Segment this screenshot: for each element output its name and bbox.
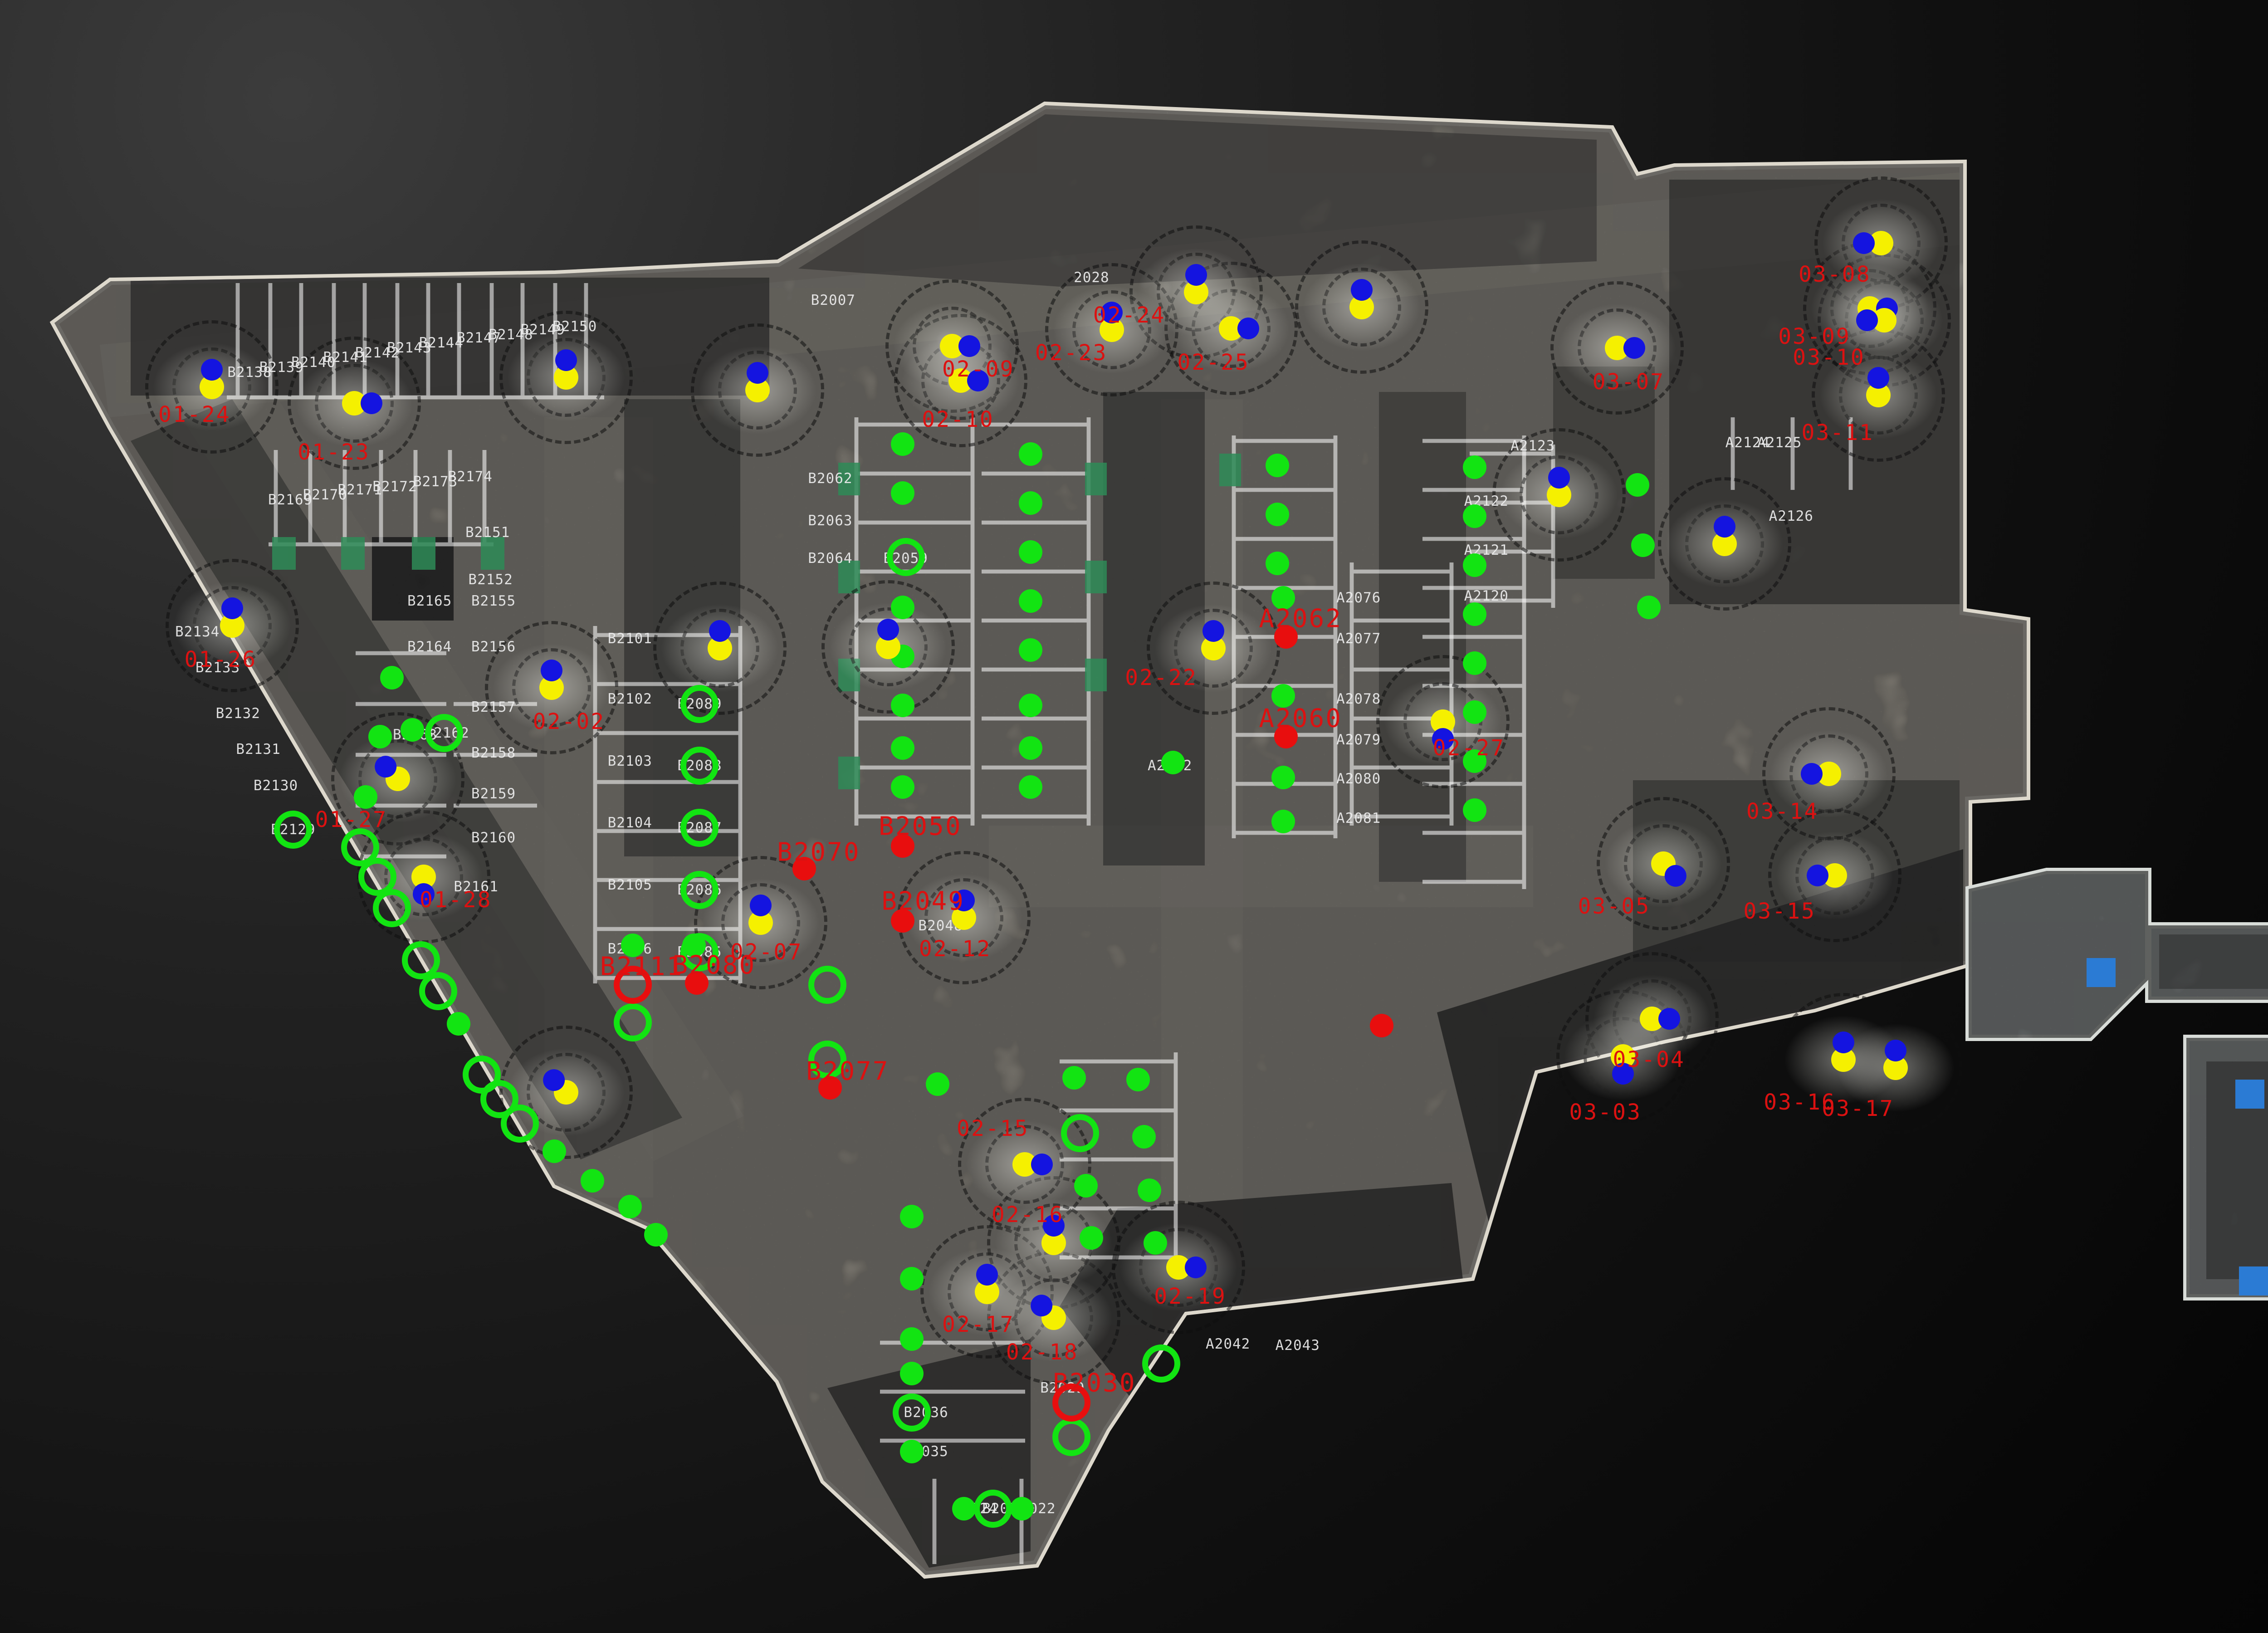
parking-status-dot-ok[interactable] [926, 1072, 949, 1096]
space-id-label: A2123 [1510, 438, 1555, 454]
scan-station-orientation [1430, 709, 1456, 734]
parking-status-dot-ok[interactable] [1266, 454, 1289, 477]
scanner-head-icon [1856, 309, 1878, 331]
parking-status-dot-ok[interactable] [1631, 533, 1655, 557]
scan-station-marker[interactable] [1546, 482, 1572, 508]
parking-status-dot-ok[interactable] [1271, 810, 1295, 833]
space-id-label: A2077 [1336, 631, 1381, 647]
scan-station-label: 02-15 [957, 1116, 1029, 1141]
parking-status-ring-ok[interactable] [274, 811, 312, 849]
scan-station-marker[interactable] [748, 910, 773, 935]
scan-station-orientation [1822, 863, 1848, 888]
parking-status-dot-ok[interactable] [368, 725, 392, 748]
parking-status-dot-ok[interactable] [447, 1012, 470, 1036]
scan-station-orientation [1201, 636, 1226, 661]
space-id-label: B2105 [608, 877, 652, 893]
scan-station-label: 01-28 [420, 887, 492, 913]
scan-station-orientation [1183, 279, 1209, 305]
parking-status-ring-ok[interactable] [680, 809, 719, 847]
space-id-label: A2076 [1336, 590, 1381, 606]
scan-station-label: 02-27 [1433, 735, 1505, 761]
scan-station-label: 01-27 [315, 807, 388, 832]
scan-station-orientation [745, 377, 770, 403]
scan-station-marker[interactable] [1201, 636, 1226, 661]
scan-station-marker[interactable] [342, 391, 367, 416]
parking-status-dot-ok[interactable] [900, 1327, 924, 1351]
scan-station-marker[interactable] [1872, 308, 1897, 333]
parking-status-dot-ok[interactable] [380, 666, 404, 689]
scan-station-label: 01-24 [158, 402, 231, 427]
scan-station-label: 03-11 [1801, 420, 1874, 445]
parking-status-dot-ok[interactable] [1019, 589, 1042, 613]
parking-status-dot-ok[interactable] [1463, 455, 1486, 479]
space-id-label: B2164 [407, 639, 452, 655]
scan-station-marker[interactable] [875, 634, 901, 660]
scan-station-label: 02-23 [1035, 340, 1108, 366]
scan-station-label: 02-16 [992, 1202, 1064, 1227]
scanner-head-icon [1867, 367, 1889, 389]
parking-status-dot-ok[interactable] [1019, 491, 1042, 515]
scan-station-marker[interactable] [939, 333, 965, 359]
parking-status-ring-ok[interactable] [680, 685, 719, 723]
space-id-label: B2132 [216, 705, 260, 722]
scanner-head-icon [1833, 1032, 1854, 1053]
scan-station-orientation [553, 365, 579, 390]
scan-station-label: 02-22 [1125, 665, 1198, 690]
parking-status-dot-ok[interactable] [891, 736, 914, 760]
scan-station-orientation [1218, 316, 1244, 341]
scan-station-label: 02-02 [533, 709, 606, 734]
scanner-head-icon [747, 362, 768, 384]
right-wing-corridors [1960, 853, 2268, 1615]
space-id-label: B2104 [608, 815, 652, 831]
parking-status-dot-ok[interactable] [1463, 553, 1486, 577]
parking-status-dot-ok[interactable] [1019, 442, 1042, 466]
parking-status-ring-ok[interactable] [887, 538, 925, 576]
space-id-label: B2165 [407, 593, 452, 609]
space-id-label: B2150 [552, 318, 597, 335]
parking-status-ring-ok[interactable] [1052, 1418, 1090, 1456]
parking-status-dot-ok[interactable] [1019, 540, 1042, 564]
scan-station-marker[interactable] [1218, 316, 1244, 341]
scan-station-label: 03-03 [1569, 1100, 1642, 1125]
scan-station-label: 01-23 [298, 440, 370, 465]
space-id-label: A2079 [1336, 732, 1381, 748]
parking-status-dot-ok[interactable] [1126, 1068, 1150, 1091]
scanner-head-icon [1185, 264, 1207, 286]
parking-status-ring-ok[interactable] [1142, 1345, 1180, 1383]
parking-status-dot-ok[interactable] [900, 1440, 924, 1463]
parking-status-dot-ok[interactable] [1266, 552, 1289, 575]
parking-status-dot-ok[interactable] [1019, 638, 1042, 662]
space-id-label: B2151 [465, 524, 510, 541]
scan-station-label: 02-12 [919, 936, 992, 962]
scanner-head-icon [1185, 1257, 1207, 1278]
scan-station-orientation [1872, 308, 1897, 333]
space-id-label: A2126 [1769, 508, 1813, 524]
scan-station-label: 03-04 [1613, 1047, 1685, 1072]
scanner-head-icon [1623, 337, 1645, 359]
scanner-head-icon [555, 349, 577, 371]
scan-station-orientation [1868, 230, 1894, 256]
space-id-label: B2172 [372, 479, 417, 495]
parking-status-dot-ok[interactable] [1019, 775, 1042, 799]
parking-status-dot-flagged[interactable] [1370, 1014, 1393, 1037]
parking-status-dot-ok[interactable] [891, 596, 914, 619]
parking-status-dot-ok[interactable] [1463, 700, 1486, 724]
space-id-label: A2125 [1757, 435, 1802, 451]
parking-status-dot-ok[interactable] [1463, 602, 1486, 626]
scan-station-marker[interactable] [1183, 279, 1209, 305]
parking-status-ring-ok[interactable] [373, 889, 411, 927]
scan-station-orientation [748, 910, 773, 935]
scan-station-marker[interactable] [553, 1080, 579, 1105]
scan-station-marker[interactable] [1041, 1305, 1066, 1330]
scanner-head-icon [1885, 1040, 1906, 1061]
space-id-label: B2103 [608, 753, 652, 769]
scanner-head-icon [221, 597, 243, 619]
scan-station-orientation [1639, 1006, 1665, 1032]
scan-station-marker[interactable] [539, 675, 564, 700]
scan-station-marker[interactable] [1816, 761, 1842, 787]
parking-status-dot-ok[interactable] [1626, 473, 1649, 497]
scan-station-marker[interactable] [1639, 1006, 1665, 1032]
parking-status-ring-ok[interactable] [1061, 1114, 1099, 1152]
scan-station-orientation [1041, 1230, 1066, 1256]
scan-station-orientation [1546, 482, 1572, 508]
parking-status-dot-ok[interactable] [581, 1169, 604, 1193]
parking-status-dot-ok[interactable] [891, 694, 914, 717]
scan-station-orientation [1712, 531, 1737, 557]
parking-status-dot-ok[interactable] [401, 718, 424, 742]
scan-station-orientation [939, 333, 965, 359]
scan-station-label: 03-15 [1743, 899, 1816, 924]
scan-station-orientation [1604, 335, 1630, 361]
scanner-head-icon [541, 660, 562, 681]
scan-station-label: 03-17 [1822, 1096, 1894, 1121]
scanner-head-icon [1031, 1154, 1053, 1175]
flagged-space-label: B2080 [673, 950, 756, 980]
scanner-head-icon [1351, 279, 1373, 301]
parking-status-ring-ok[interactable] [808, 966, 846, 1004]
parking-status-ring-ok[interactable] [425, 714, 463, 752]
scanner-head-icon [1658, 1008, 1680, 1030]
parking-status-dot-ok[interactable] [1463, 651, 1486, 675]
pointcloud-floorplan-view: B2138B2139B2140B2141B2142B2143B2144B2147… [0, 0, 2268, 1633]
parking-status-dot-ok[interactable] [891, 775, 914, 799]
flagged-space-label: B2077 [806, 1056, 890, 1086]
scan-station-marker[interactable] [1166, 1255, 1191, 1280]
space-id-label: A2078 [1336, 691, 1381, 707]
scan-station-label: 02-10 [922, 407, 994, 432]
scanner-head-icon [1548, 467, 1570, 489]
space-id-label: B2174 [448, 469, 493, 485]
flagged-space-label: B2070 [777, 838, 860, 867]
scan-station-marker[interactable] [411, 864, 436, 890]
scan-station-orientation [1646, 846, 1681, 882]
scanner-head-icon [201, 359, 223, 381]
scan-station-orientation [342, 391, 367, 416]
parking-status-dot-ok[interactable] [1132, 1125, 1156, 1149]
scanner-head-icon [1807, 865, 1828, 886]
scan-station-label: 02-25 [1177, 350, 1250, 375]
scanner-head-icon [976, 1264, 998, 1286]
scan-station-marker[interactable] [1831, 1047, 1856, 1072]
scan-station-orientation [199, 374, 225, 400]
scan-station-label: 03-14 [1746, 799, 1819, 824]
scan-station-marker[interactable] [1883, 1055, 1908, 1081]
space-id-label: B2063 [808, 513, 852, 529]
scan-station-orientation [411, 864, 436, 890]
scan-station-label: 03-05 [1578, 894, 1651, 919]
scan-station-marker[interactable] [1430, 709, 1456, 734]
scan-station-orientation [380, 761, 415, 797]
parking-status-dot-ok[interactable] [1074, 1174, 1098, 1198]
scan-station-marker[interactable] [1868, 230, 1894, 256]
scan-station-orientation [1349, 294, 1374, 320]
parking-status-dot-ok[interactable] [891, 481, 914, 505]
scan-station-orientation [220, 613, 245, 638]
space-id-label: B2064 [808, 550, 852, 567]
scan-station-orientation [1166, 1255, 1191, 1280]
scan-station-marker[interactable] [1041, 1230, 1066, 1256]
parking-status-dot-ok[interactable] [952, 1497, 976, 1521]
scan-station-orientation [974, 1279, 1000, 1305]
space-id-label: A2120 [1464, 588, 1509, 604]
flagged-space-label: B2111 [600, 952, 684, 982]
parking-status-dot-ok[interactable] [1062, 1066, 1086, 1090]
scan-station-label: 02-19 [1154, 1284, 1227, 1309]
parking-status-dot-ok[interactable] [1138, 1178, 1161, 1202]
parking-status-dot-ok[interactable] [644, 1223, 668, 1247]
scan-station-label: 01-26 [185, 647, 257, 672]
space-id-label: B2160 [471, 830, 516, 846]
space-id-label: B2134 [175, 624, 220, 640]
flagged-space-label: B2050 [879, 812, 962, 841]
space-id-label: B2102 [608, 691, 652, 707]
space-id-label: B2156 [471, 639, 516, 655]
scan-station-orientation [1883, 1055, 1908, 1081]
flagged-space-label: A2062 [1259, 604, 1342, 634]
space-id-label: B2157 [471, 699, 516, 715]
parking-status-ring-ok[interactable] [974, 1490, 1012, 1528]
scan-station-marker[interactable] [1651, 851, 1676, 876]
scan-station-marker[interactable] [553, 365, 579, 390]
scan-station-marker[interactable] [1349, 294, 1374, 320]
flagged-space-label: A2060 [1259, 704, 1342, 733]
space-id-label: B2007 [811, 292, 855, 308]
scan-station-marker[interactable] [1822, 863, 1848, 888]
space-id-label: B2062 [808, 470, 852, 487]
scan-station-orientation [1866, 382, 1891, 408]
scan-station-marker[interactable] [1604, 335, 1630, 361]
space-id-label: B2159 [471, 786, 516, 802]
parking-status-dot-ok[interactable] [1266, 503, 1289, 526]
scan-station-label: 02-18 [1006, 1340, 1079, 1365]
scan-station-orientation [1036, 1300, 1072, 1336]
scan-station-orientation [1816, 761, 1842, 787]
space-id-label: 2028 [1074, 269, 1110, 286]
scan-station-orientation [548, 1075, 584, 1110]
scan-station-label: 02-17 [942, 1312, 1015, 1337]
parking-status-ring-ok[interactable] [419, 972, 457, 1010]
parking-status-dot-ok[interactable] [1019, 694, 1042, 717]
parking-status-dot-ok[interactable] [1144, 1231, 1167, 1255]
parking-status-ring-ok[interactable] [614, 1003, 652, 1041]
parking-status-dot-ok[interactable] [1463, 504, 1486, 528]
parking-status-dot-ok[interactable] [543, 1139, 566, 1163]
scan-station-orientation [707, 636, 733, 661]
scanner-head-icon [1714, 516, 1735, 538]
scan-station-orientation [1831, 1047, 1856, 1072]
scanner-head-icon [361, 392, 382, 414]
parking-status-dot-ok[interactable] [1161, 751, 1185, 774]
scanner-head-icon [1202, 620, 1224, 642]
parking-status-ring-ok[interactable] [501, 1105, 539, 1143]
parking-status-dot-ok[interactable] [900, 1362, 924, 1385]
flagged-space-label: B2030 [1053, 1369, 1136, 1398]
scan-station-marker[interactable] [974, 1279, 1000, 1305]
space-id-label: A2080 [1336, 771, 1381, 787]
scan-station-label: 03-08 [1799, 262, 1871, 287]
space-id-label: B2155 [471, 593, 516, 609]
scan-station-marker[interactable] [745, 377, 770, 403]
parking-status-dot-ok[interactable] [1080, 1226, 1103, 1250]
parking-status-dot-ok[interactable] [354, 785, 377, 809]
scan-station-label: 03-10 [1793, 345, 1865, 370]
scanner-head-icon [1237, 318, 1259, 339]
scan-station-marker[interactable] [707, 636, 733, 661]
space-id-label: B2152 [468, 572, 513, 588]
space-id-label: A2043 [1276, 1337, 1320, 1354]
parking-status-dot-ok[interactable] [891, 432, 914, 456]
parking-status-dot-ok[interactable] [1010, 1497, 1034, 1521]
space-id-label: A2081 [1336, 810, 1381, 826]
parking-status-ring-ok[interactable] [680, 871, 719, 909]
parking-status-dot-ok[interactable] [900, 1205, 924, 1228]
scanner-head-icon [750, 895, 772, 916]
parking-status-dot-ok[interactable] [1271, 766, 1295, 789]
space-id-label: B2131 [236, 741, 280, 758]
scan-station-marker[interactable] [199, 374, 225, 400]
scan-station-marker[interactable] [385, 766, 411, 792]
space-id-label: A2042 [1206, 1336, 1250, 1352]
scan-station-label: 02-24 [1093, 303, 1166, 328]
parking-status-dot-ok[interactable] [900, 1267, 924, 1291]
scan-station-label: 03-07 [1593, 369, 1665, 395]
scan-station-marker[interactable] [220, 613, 245, 638]
space-id-label: B2130 [254, 777, 298, 794]
parking-status-ring-ok[interactable] [893, 1393, 931, 1432]
scan-station-marker[interactable] [1712, 531, 1737, 557]
scan-station-orientation [1012, 1152, 1037, 1177]
scan-station-orientation [539, 675, 564, 700]
parking-status-dot-ok[interactable] [1019, 736, 1042, 760]
parking-status-dot-ok[interactable] [1463, 798, 1486, 822]
space-id-label: B2158 [471, 745, 516, 761]
scanner-head-icon [877, 619, 899, 640]
scan-station-orientation [875, 634, 901, 660]
scan-station-marker[interactable] [1866, 382, 1891, 408]
parking-status-dot-ok[interactable] [618, 1195, 642, 1218]
scanner-head-icon [709, 620, 731, 642]
parking-status-ring-ok[interactable] [680, 747, 719, 785]
parking-status-dot-ok[interactable] [1637, 596, 1661, 619]
scan-station-label: 02-09 [942, 357, 1015, 382]
space-id-label: B2101 [608, 631, 652, 647]
scan-station-marker[interactable] [1012, 1152, 1037, 1177]
flagged-space-label: B2049 [881, 887, 965, 916]
